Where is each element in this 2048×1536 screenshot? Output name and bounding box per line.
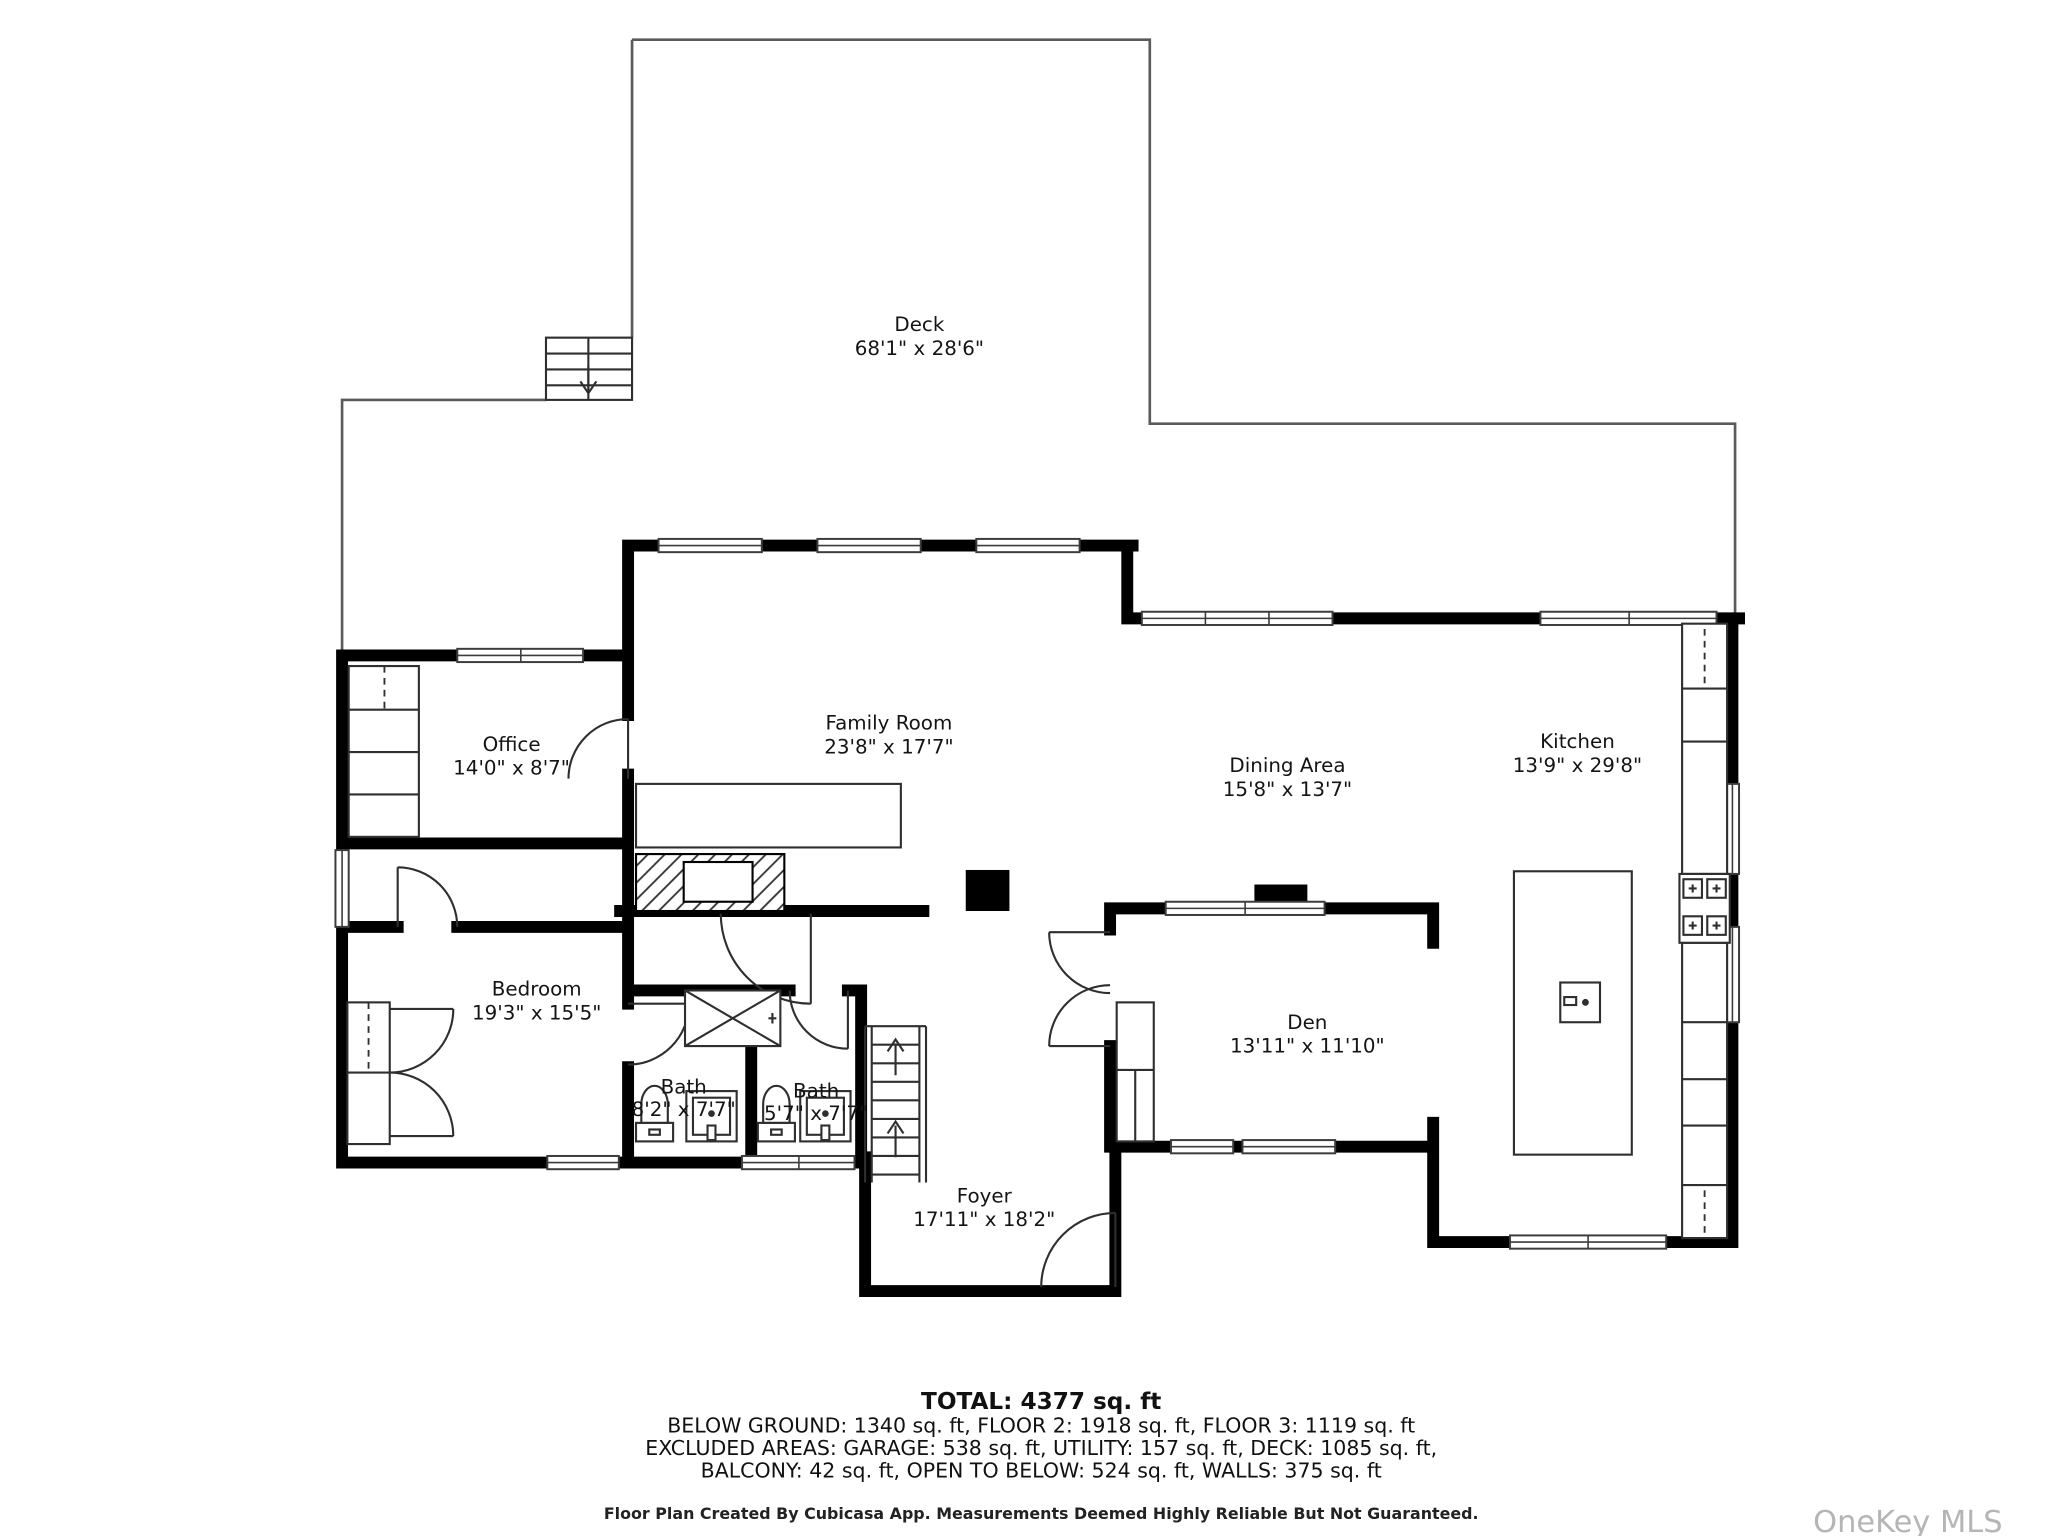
svg-text:8'2" x 7'7": 8'2" x 7'7": [632, 1098, 736, 1121]
svg-text:5'7" x 7'7": 5'7" x 7'7": [764, 1102, 868, 1125]
office-shelves: [349, 666, 419, 837]
den-closet: [1117, 1002, 1154, 1141]
svg-text:Bath: Bath: [661, 1076, 707, 1099]
room-label-bath-1: Bath8'2" x 7'7": [632, 1076, 736, 1122]
deck-outline: [342, 40, 1735, 656]
fireplace: [636, 784, 901, 911]
summary-total: TOTAL: 4377 sq. ft: [921, 1388, 1161, 1415]
summary: TOTAL: 4377 sq. ft BELOW GROUND: 1340 sq…: [604, 1388, 1479, 1523]
summary-line-3: BALCONY: 42 sq. ft, OPEN TO BELOW: 524 s…: [701, 1459, 1382, 1483]
svg-text:13'9" x 29'8": 13'9" x 29'8": [1513, 754, 1642, 777]
den-french-doors: [1049, 932, 1110, 1046]
svg-text:14'0" x 8'7": 14'0" x 8'7": [453, 757, 570, 780]
office-door: [568, 719, 628, 779]
room-label-dining-area: Dining Area15'8" x 13'7": [1223, 754, 1352, 801]
room-label-deck: Deck68'1" x 28'6": [855, 313, 984, 360]
kitchen-island: [1514, 871, 1632, 1154]
room-label-kitchen: Kitchen13'9" x 29'8": [1513, 730, 1642, 777]
floor-plan-page: Deck68'1" x 28'6" Office14'0" x 8'7" Fam…: [0, 0, 2048, 1536]
floor-plan-drawing: Deck68'1" x 28'6" Office14'0" x 8'7" Fam…: [0, 0, 2048, 1536]
svg-text:17'11" x 18'2": 17'11" x 18'2": [913, 1208, 1055, 1231]
room-label-foyer: Foyer17'11" x 18'2": [913, 1184, 1055, 1231]
svg-text:Family Room: Family Room: [826, 712, 953, 735]
svg-text:68'1" x 28'6": 68'1" x 28'6": [855, 337, 984, 360]
summary-line-1: BELOW GROUND: 1340 sq. ft, FLOOR 2: 1918…: [667, 1414, 1415, 1438]
footer-disclaimer: Floor Plan Created By Cubicasa App. Meas…: [604, 1504, 1479, 1523]
svg-text:15'8" x 13'7": 15'8" x 13'7": [1223, 778, 1352, 801]
bath2-door: [790, 990, 848, 1048]
deck-stairs-icon: [546, 338, 632, 400]
bedroom-door: [398, 867, 458, 927]
room-label-bedroom: Bedroom19'3" x 15'5": [472, 978, 601, 1025]
svg-text:23'8" x 17'7": 23'8" x 17'7": [824, 735, 953, 758]
svg-text:Dining Area: Dining Area: [1229, 754, 1345, 777]
svg-text:19'3" x 15'5": 19'3" x 15'5": [472, 1002, 601, 1025]
svg-text:Office: Office: [483, 733, 541, 756]
room-label-family-room: Family Room23'8" x 17'7": [824, 712, 953, 759]
svg-text:Den: Den: [1287, 1011, 1327, 1034]
bath1-door: [628, 1004, 689, 1065]
svg-text:Foyer: Foyer: [957, 1184, 1013, 1207]
room-label-den: Den13'11" x 11'10": [1230, 1011, 1385, 1058]
kitchen-fixtures: [1514, 624, 1730, 1238]
column-dining: [966, 870, 1010, 911]
room-label-office: Office14'0" x 8'7": [453, 733, 570, 780]
svg-text:Bedroom: Bedroom: [492, 978, 582, 1001]
stairs-main: [865, 1026, 926, 1182]
bedroom-closet: [347, 1002, 389, 1144]
watermark: OneKey MLS: [1813, 1505, 2002, 1536]
svg-text:Kitchen: Kitchen: [1540, 730, 1615, 753]
svg-text:Bath: Bath: [793, 1080, 839, 1103]
svg-text:Deck: Deck: [894, 313, 944, 336]
bedroom-closet-doors: [390, 1009, 454, 1136]
summary-line-2: EXCLUDED AREAS: GARAGE: 538 sq. ft, UTIL…: [645, 1436, 1437, 1460]
stove-icon: [1679, 874, 1729, 943]
svg-text:13'11" x 11'10": 13'11" x 11'10": [1230, 1035, 1385, 1058]
shower-icon: [685, 990, 780, 1046]
